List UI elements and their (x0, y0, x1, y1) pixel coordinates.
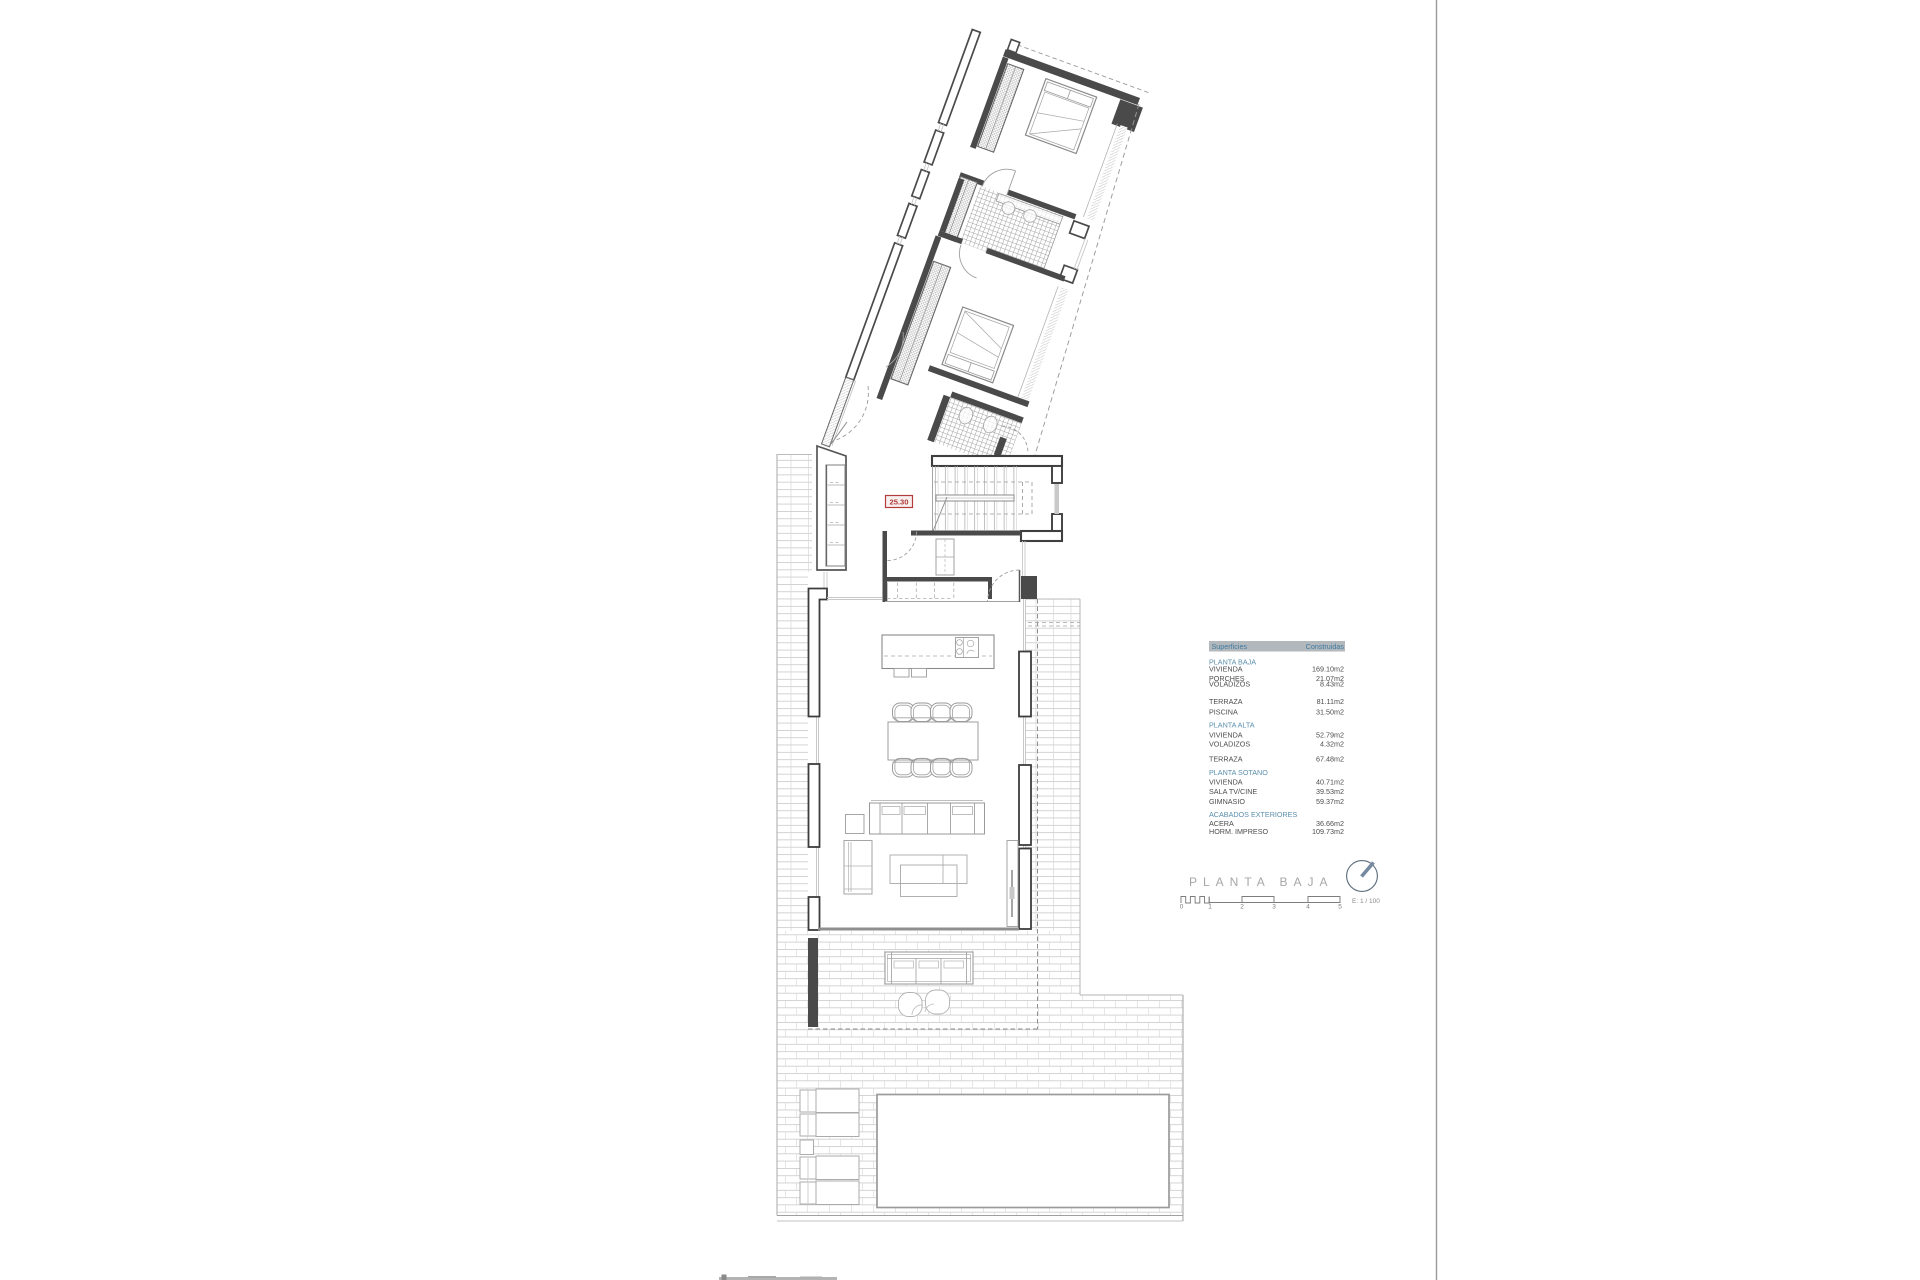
svg-text:VIVIENDA: VIVIENDA (1209, 731, 1243, 740)
svg-text:PLANTA ALTA: PLANTA ALTA (1209, 721, 1255, 730)
svg-text:VOLADIZOS: VOLADIZOS (1209, 740, 1250, 749)
svg-text:40.71m2: 40.71m2 (1316, 778, 1344, 787)
svg-text:109.73m2: 109.73m2 (1312, 827, 1344, 836)
svg-text:PISCINA: PISCINA (1209, 708, 1238, 717)
svg-text:31.50m2: 31.50m2 (1316, 708, 1344, 717)
svg-text:4.32m2: 4.32m2 (1320, 740, 1344, 749)
svg-text:81.11m2: 81.11m2 (1317, 697, 1344, 706)
svg-text:67.48m2: 67.48m2 (1316, 755, 1344, 764)
svg-text:VOLADIZOS: VOLADIZOS (1209, 680, 1250, 689)
svg-text:E: 1 / 100: E: 1 / 100 (1352, 898, 1380, 905)
svg-text:PLANTA BAJA: PLANTA BAJA (1189, 875, 1333, 889)
svg-text:1: 1 (1208, 904, 1212, 911)
svg-text:52.79m2: 52.79m2 (1316, 731, 1344, 740)
svg-text:ACABADOS EXTERIORES: ACABADOS EXTERIORES (1209, 810, 1297, 819)
svg-text:59.37m2: 59.37m2 (1316, 797, 1344, 806)
svg-text:25.30: 25.30 (889, 498, 908, 507)
svg-text:2: 2 (1240, 904, 1244, 911)
svg-text:GIMNASIO: GIMNASIO (1209, 797, 1245, 806)
svg-text:0: 0 (1180, 904, 1184, 911)
svg-text:PLANTA SOTANO: PLANTA SOTANO (1209, 768, 1268, 777)
svg-text:TERRAZA: TERRAZA (1209, 755, 1243, 764)
svg-text:5: 5 (1338, 904, 1342, 911)
svg-text:VIVIENDA: VIVIENDA (1209, 778, 1243, 787)
svg-text:Superficies: Superficies (1212, 642, 1248, 651)
svg-text:3: 3 (1272, 904, 1276, 911)
svg-text:Construidas: Construidas (1306, 642, 1345, 651)
svg-text:HORM. IMPRESO: HORM. IMPRESO (1209, 827, 1269, 836)
svg-text:4: 4 (1306, 904, 1310, 911)
svg-text:TERRAZA: TERRAZA (1209, 697, 1243, 706)
svg-text:169.10m2: 169.10m2 (1312, 665, 1344, 674)
svg-text:SALA TV/CINE: SALA TV/CINE (1209, 787, 1257, 796)
svg-text:VIVIENDA: VIVIENDA (1209, 665, 1243, 674)
svg-text:8.43m2: 8.43m2 (1320, 680, 1344, 689)
svg-text:39.53m2: 39.53m2 (1316, 787, 1344, 796)
